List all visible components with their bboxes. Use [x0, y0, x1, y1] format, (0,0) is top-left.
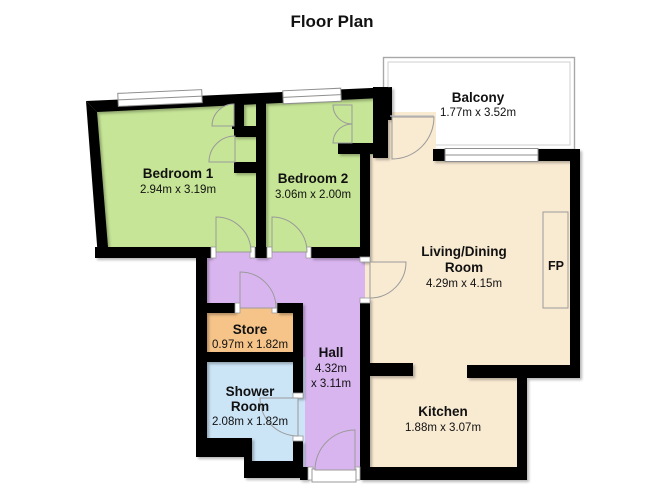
- kitchen-name: Kitchen: [418, 404, 468, 419]
- wall-living-right: [570, 149, 580, 378]
- wall-hall-kitchen: [360, 375, 370, 480]
- wall-living-kitchen: [360, 363, 413, 376]
- balcony-name: Balcony: [452, 90, 505, 105]
- wall-store-shower-divider: [196, 352, 303, 362]
- wall-shower-step: [244, 438, 252, 478]
- shower-name-line2: Room: [231, 399, 269, 414]
- store-dims: 0.97m x 1.82m: [212, 339, 288, 351]
- living-window: [445, 149, 538, 162]
- shower-name-line1: Shower: [226, 384, 276, 399]
- floor-plan-svg: Floor Plan: [0, 0, 668, 486]
- wall-bedroom-divider: [256, 100, 266, 247]
- bedroom2-dims: 3.06m x 2.00m: [275, 189, 351, 201]
- living-name-line2: Room: [445, 260, 483, 275]
- kitchen-dims: 1.88m x 3.07m: [405, 422, 481, 434]
- wall-shower-bottom-left: [196, 438, 252, 457]
- page-title: Floor Plan: [290, 12, 373, 31]
- wall-kitchen-right: [517, 365, 527, 480]
- floor-plan-page: Floor Plan: [0, 0, 668, 486]
- wall-bedroom-bottom-a: [95, 247, 211, 258]
- fireplace-label: FP: [548, 259, 564, 273]
- bedroom2-name: Bedroom 2: [278, 171, 349, 186]
- wall-shower-bottom-right: [244, 461, 303, 478]
- entrance-threshold: [312, 469, 356, 482]
- wall-bedroom2-right-upper: [373, 87, 388, 158]
- shower-dims: 2.08m x 1.82m: [212, 416, 288, 428]
- living-dims: 4.29m x 4.15m: [426, 278, 502, 290]
- hall-name: Hall: [319, 345, 344, 360]
- balcony-dims: 1.77m x 3.52m: [440, 107, 516, 119]
- wall-store-top-a: [196, 303, 235, 313]
- living-name-line1: Living/Dining: [421, 244, 507, 259]
- bedroom1-dims: 2.94m x 3.19m: [140, 184, 216, 196]
- hall-dims-line1: 4.32m: [315, 363, 347, 375]
- hall-dims-line2: x 3.11m: [311, 378, 351, 390]
- wall-closet-stub-b: [234, 126, 262, 137]
- bedroom1-name: Bedroom 1: [143, 166, 214, 181]
- store-name: Store: [233, 322, 268, 337]
- bedroom2-window: [283, 88, 342, 104]
- wall-hall-living-a: [360, 143, 370, 262]
- wall-kitchen-bottom: [360, 467, 527, 480]
- wall-closet-stub-c: [234, 162, 262, 173]
- wall-bedroom-bottom-b: [255, 247, 267, 258]
